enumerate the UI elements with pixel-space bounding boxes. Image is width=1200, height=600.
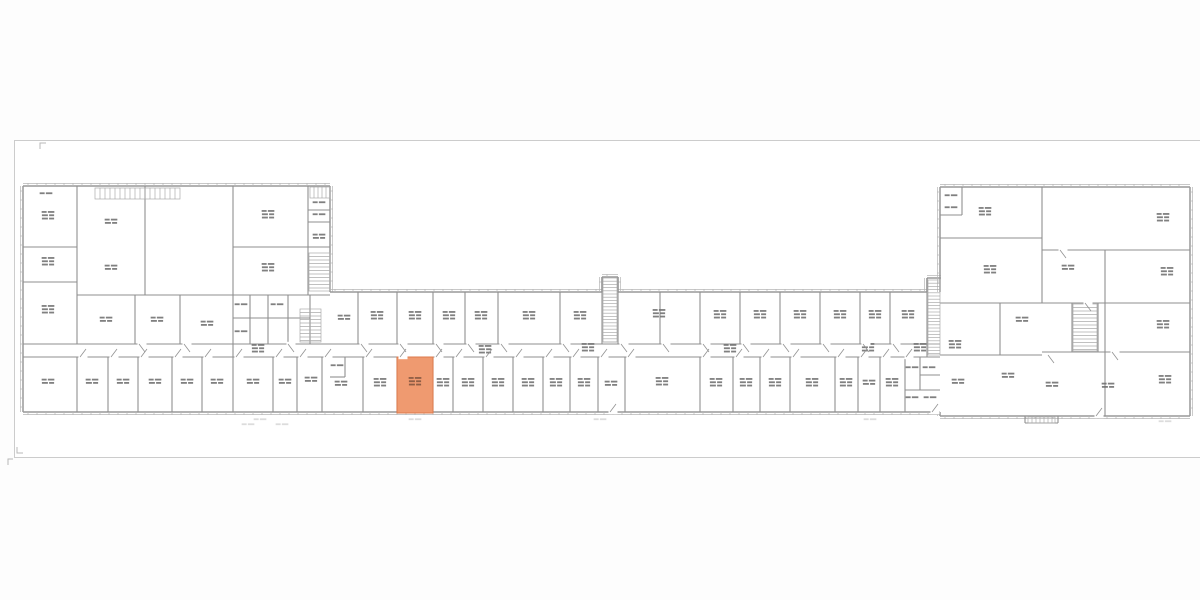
label-line bbox=[262, 270, 268, 272]
label-line bbox=[806, 385, 812, 387]
label-line bbox=[158, 320, 163, 322]
label-line bbox=[449, 311, 456, 313]
door-gap bbox=[365, 355, 374, 359]
door-gap bbox=[140, 355, 149, 359]
label-line bbox=[990, 265, 997, 267]
label-line bbox=[415, 377, 422, 379]
label-line bbox=[443, 314, 449, 316]
label-line bbox=[42, 312, 48, 314]
label-line bbox=[188, 382, 193, 384]
label-line bbox=[574, 314, 580, 316]
label-line bbox=[813, 381, 818, 383]
label-line bbox=[906, 366, 911, 368]
label-line bbox=[806, 378, 811, 380]
label-line bbox=[794, 310, 799, 312]
label-line bbox=[550, 385, 556, 387]
label-line bbox=[42, 382, 48, 384]
label-line bbox=[714, 313, 720, 315]
label-line bbox=[1164, 323, 1169, 325]
door-gap bbox=[174, 355, 183, 359]
label-line bbox=[923, 366, 928, 368]
room-label bbox=[313, 213, 326, 215]
label-line bbox=[247, 379, 252, 381]
label-line bbox=[840, 310, 847, 312]
label-line bbox=[331, 364, 336, 366]
label-line bbox=[468, 378, 475, 380]
label-line bbox=[469, 385, 474, 387]
label-line bbox=[581, 318, 586, 320]
label-line bbox=[720, 310, 727, 312]
label-line bbox=[450, 318, 455, 320]
highlighted-room[interactable] bbox=[397, 357, 433, 413]
label-line bbox=[1022, 317, 1029, 319]
label-line bbox=[594, 418, 599, 420]
label-line bbox=[482, 318, 487, 320]
label-line bbox=[840, 378, 845, 380]
label-line bbox=[252, 347, 258, 349]
label-line bbox=[605, 381, 610, 383]
label-line bbox=[479, 348, 485, 350]
label-line bbox=[869, 380, 876, 382]
room-label bbox=[235, 303, 248, 305]
label-line bbox=[656, 384, 662, 386]
label-line bbox=[269, 266, 274, 268]
label-line bbox=[1023, 320, 1028, 322]
label-line bbox=[656, 377, 661, 379]
label-line bbox=[1159, 420, 1164, 422]
label-line bbox=[378, 314, 383, 316]
label-line bbox=[662, 377, 669, 379]
label-line bbox=[380, 378, 387, 380]
label-line bbox=[985, 207, 992, 209]
door-gap bbox=[399, 355, 408, 359]
label-line bbox=[279, 382, 285, 384]
label-line bbox=[522, 378, 527, 380]
label-line bbox=[155, 379, 162, 381]
label-line bbox=[945, 194, 950, 196]
label-line bbox=[479, 352, 485, 354]
label-line bbox=[909, 313, 914, 315]
label-line bbox=[893, 381, 898, 383]
label-line bbox=[49, 260, 54, 262]
label-line bbox=[1164, 327, 1169, 329]
label-line bbox=[1016, 317, 1021, 319]
door-gap bbox=[572, 355, 581, 359]
label-line bbox=[1157, 213, 1162, 215]
label-line bbox=[721, 317, 726, 319]
label-line bbox=[156, 382, 161, 384]
label-line bbox=[482, 314, 487, 316]
label-line bbox=[1167, 267, 1174, 269]
label-line bbox=[313, 234, 318, 236]
label-line bbox=[740, 385, 746, 387]
door-gap bbox=[399, 342, 408, 346]
door-gap bbox=[600, 355, 609, 359]
room-label bbox=[242, 423, 255, 425]
label-line bbox=[1157, 216, 1163, 218]
label-line bbox=[151, 320, 157, 322]
label-line bbox=[262, 210, 267, 212]
label-line bbox=[902, 310, 907, 312]
label-line bbox=[342, 384, 347, 386]
label-line bbox=[498, 378, 505, 380]
label-line bbox=[740, 378, 745, 380]
label-line bbox=[475, 311, 480, 313]
room-label bbox=[594, 418, 607, 420]
label-line bbox=[499, 385, 504, 387]
label-line bbox=[612, 384, 617, 386]
label-line bbox=[285, 379, 292, 381]
label-line bbox=[117, 382, 123, 384]
label-line bbox=[574, 311, 579, 313]
room-label bbox=[331, 364, 344, 366]
label-line bbox=[335, 384, 341, 386]
label-line bbox=[86, 379, 91, 381]
label-line bbox=[444, 381, 449, 383]
label-line bbox=[313, 201, 318, 203]
label-line bbox=[578, 378, 583, 380]
door-gap bbox=[627, 355, 636, 359]
label-line bbox=[268, 263, 275, 265]
label-line bbox=[556, 378, 563, 380]
label-line bbox=[841, 317, 846, 319]
door-gap bbox=[1111, 350, 1120, 354]
label-line bbox=[157, 317, 164, 319]
label-line bbox=[1108, 383, 1115, 385]
label-line bbox=[721, 313, 726, 315]
label-line bbox=[374, 378, 379, 380]
label-line bbox=[42, 305, 47, 307]
label-line bbox=[344, 315, 351, 317]
label-line bbox=[529, 381, 534, 383]
label-line bbox=[1002, 373, 1007, 375]
label-line bbox=[319, 234, 326, 236]
label-line bbox=[724, 344, 729, 346]
room-label bbox=[923, 366, 936, 368]
floor-plan bbox=[0, 0, 1200, 600]
label-line bbox=[653, 316, 659, 318]
label-line bbox=[409, 418, 414, 420]
label-line bbox=[834, 317, 840, 319]
label-line bbox=[282, 423, 289, 425]
label-line bbox=[486, 348, 491, 350]
label-line bbox=[259, 351, 264, 353]
label-line bbox=[794, 317, 800, 319]
label-line bbox=[740, 381, 746, 383]
label-line bbox=[338, 315, 343, 317]
label-line bbox=[207, 321, 214, 323]
label-line bbox=[485, 345, 492, 347]
label-line bbox=[653, 312, 659, 314]
door-gap bbox=[905, 355, 914, 359]
label-line bbox=[761, 317, 766, 319]
door-gap bbox=[110, 355, 119, 359]
door-gap bbox=[455, 355, 464, 359]
label-line bbox=[211, 382, 217, 384]
label-line bbox=[201, 321, 206, 323]
label-line bbox=[443, 311, 448, 313]
label-line bbox=[1161, 270, 1167, 272]
label-line bbox=[338, 318, 344, 320]
label-line bbox=[775, 378, 782, 380]
label-line bbox=[149, 379, 154, 381]
label-line bbox=[1062, 268, 1068, 270]
door-gap bbox=[862, 342, 871, 346]
label-line bbox=[523, 311, 528, 313]
label-line bbox=[869, 317, 875, 319]
label-line bbox=[731, 347, 736, 349]
label-line bbox=[979, 207, 984, 209]
label-line bbox=[345, 318, 350, 320]
label-line bbox=[710, 381, 716, 383]
label-line bbox=[341, 381, 348, 383]
label-line bbox=[530, 314, 535, 316]
label-line bbox=[262, 266, 268, 268]
label-line bbox=[211, 379, 216, 381]
label-line bbox=[262, 263, 267, 265]
label-line bbox=[305, 380, 311, 382]
label-line bbox=[730, 344, 737, 346]
label-line bbox=[949, 347, 955, 349]
room-label bbox=[235, 330, 248, 332]
label-line bbox=[335, 381, 340, 383]
door-gap bbox=[892, 342, 901, 346]
label-line bbox=[117, 379, 122, 381]
label-line bbox=[663, 384, 668, 386]
label-line bbox=[959, 382, 964, 384]
label-line bbox=[320, 237, 325, 239]
label-line bbox=[124, 382, 129, 384]
label-line bbox=[1053, 385, 1058, 387]
label-line bbox=[49, 264, 54, 266]
label-line bbox=[578, 385, 584, 387]
label-line bbox=[724, 347, 730, 349]
label-line bbox=[409, 314, 415, 316]
label-line bbox=[769, 385, 775, 387]
label-line bbox=[444, 385, 449, 387]
label-line bbox=[914, 346, 920, 348]
label-line bbox=[754, 313, 760, 315]
label-line bbox=[252, 351, 258, 353]
label-line bbox=[580, 311, 587, 313]
label-line bbox=[462, 381, 468, 383]
label-line bbox=[550, 381, 556, 383]
label-line bbox=[371, 311, 376, 313]
label-line bbox=[48, 305, 55, 307]
label-line bbox=[991, 268, 996, 270]
label-line bbox=[151, 317, 156, 319]
label-line bbox=[611, 381, 618, 383]
door-gap bbox=[515, 355, 524, 359]
label-line bbox=[724, 351, 730, 353]
door-gap bbox=[435, 342, 444, 346]
label-line bbox=[269, 270, 274, 272]
label-line bbox=[886, 385, 892, 387]
label-line bbox=[286, 382, 291, 384]
label-line bbox=[812, 378, 819, 380]
label-line bbox=[840, 381, 846, 383]
label-line bbox=[710, 378, 715, 380]
label-line bbox=[912, 366, 919, 368]
label-line bbox=[523, 314, 529, 316]
label-line bbox=[42, 379, 47, 381]
floor-plan-viewer bbox=[0, 0, 1200, 600]
label-line bbox=[100, 317, 105, 319]
door-gap bbox=[882, 355, 891, 359]
label-line bbox=[893, 385, 898, 387]
label-line bbox=[1002, 376, 1008, 378]
label-line bbox=[48, 379, 55, 381]
label-line bbox=[241, 330, 248, 332]
label-line bbox=[93, 382, 98, 384]
room-label bbox=[409, 418, 422, 420]
label-line bbox=[1161, 267, 1166, 269]
label-line bbox=[149, 382, 155, 384]
label-line bbox=[585, 385, 590, 387]
room-label bbox=[254, 418, 267, 420]
label-line bbox=[653, 309, 658, 311]
label-line bbox=[875, 310, 882, 312]
label-line bbox=[1165, 375, 1172, 377]
label-line bbox=[886, 381, 892, 383]
label-line bbox=[415, 311, 422, 313]
label-line bbox=[956, 347, 961, 349]
label-line bbox=[834, 310, 839, 312]
label-line bbox=[247, 382, 253, 384]
label-line bbox=[311, 377, 318, 379]
label-line bbox=[769, 378, 774, 380]
label-line bbox=[912, 396, 919, 398]
label-line bbox=[381, 381, 386, 383]
label-line bbox=[717, 381, 722, 383]
label-line bbox=[443, 318, 449, 320]
label-line bbox=[105, 219, 110, 221]
label-line bbox=[584, 378, 591, 380]
label-line bbox=[1069, 268, 1074, 270]
label-line bbox=[523, 318, 529, 320]
label-line bbox=[492, 378, 497, 380]
label-line bbox=[550, 378, 555, 380]
label-line bbox=[714, 317, 720, 319]
label-line bbox=[1168, 274, 1173, 276]
label-line bbox=[578, 381, 584, 383]
label-line bbox=[530, 318, 535, 320]
label-line bbox=[902, 313, 908, 315]
label-line bbox=[1109, 386, 1114, 388]
label-line bbox=[1166, 378, 1171, 380]
label-line bbox=[269, 217, 274, 219]
door-gap bbox=[735, 355, 744, 359]
label-line bbox=[49, 218, 54, 220]
door-gap bbox=[762, 355, 771, 359]
label-line bbox=[588, 343, 595, 345]
label-line bbox=[492, 385, 498, 387]
label-line bbox=[717, 385, 722, 387]
label-line bbox=[589, 350, 594, 352]
label-line bbox=[949, 343, 955, 345]
label-line bbox=[416, 384, 421, 386]
label-line bbox=[1159, 375, 1164, 377]
label-line bbox=[846, 378, 853, 380]
label-line bbox=[381, 385, 386, 387]
label-line bbox=[955, 340, 962, 342]
label-line bbox=[864, 418, 869, 420]
label-line bbox=[337, 364, 344, 366]
label-line bbox=[906, 396, 911, 398]
label-line bbox=[869, 350, 874, 352]
label-line bbox=[42, 257, 47, 259]
label-line bbox=[1157, 220, 1163, 222]
label-line bbox=[437, 381, 443, 383]
door-gap bbox=[545, 355, 554, 359]
label-line bbox=[1157, 327, 1163, 329]
label-line bbox=[956, 343, 961, 345]
label-line bbox=[863, 383, 869, 385]
label-line bbox=[582, 346, 588, 348]
highlighted-room-group bbox=[397, 357, 433, 413]
label-line bbox=[1046, 385, 1052, 387]
label-line bbox=[409, 318, 415, 320]
label-line bbox=[105, 268, 111, 270]
label-line bbox=[499, 381, 504, 383]
label-line bbox=[1161, 274, 1167, 276]
label-line bbox=[86, 382, 92, 384]
door-gap bbox=[609, 410, 618, 414]
door-gap bbox=[360, 342, 369, 346]
label-line bbox=[48, 211, 55, 213]
label-line bbox=[313, 213, 318, 215]
label-line bbox=[1164, 220, 1169, 222]
label-line bbox=[201, 324, 207, 326]
label-line bbox=[42, 260, 48, 262]
label-line bbox=[876, 317, 881, 319]
label-line bbox=[574, 318, 580, 320]
label-line bbox=[528, 378, 535, 380]
label-line bbox=[747, 385, 752, 387]
label-line bbox=[581, 314, 586, 316]
label-line bbox=[991, 272, 996, 274]
label-line bbox=[1157, 320, 1162, 322]
label-line bbox=[49, 312, 54, 314]
label-line bbox=[870, 383, 875, 385]
label-line bbox=[914, 350, 920, 352]
label-line bbox=[313, 237, 319, 239]
label-line bbox=[869, 346, 874, 348]
label-line bbox=[374, 385, 380, 387]
label-line bbox=[409, 384, 415, 386]
label-line bbox=[112, 268, 117, 270]
label-line bbox=[979, 214, 985, 216]
door-gap bbox=[702, 355, 711, 359]
door-gap bbox=[235, 355, 244, 359]
label-line bbox=[276, 423, 281, 425]
label-line bbox=[262, 213, 268, 215]
label-line bbox=[277, 303, 284, 305]
label-line bbox=[522, 381, 528, 383]
label-line bbox=[259, 347, 264, 349]
room-label bbox=[945, 206, 958, 208]
label-line bbox=[716, 378, 723, 380]
room-label bbox=[906, 396, 919, 398]
label-line bbox=[48, 257, 55, 259]
label-line bbox=[747, 381, 752, 383]
label-line bbox=[806, 381, 812, 383]
label-line bbox=[105, 222, 111, 224]
door-gap bbox=[931, 410, 940, 414]
label-line bbox=[945, 206, 950, 208]
room-label bbox=[313, 201, 326, 203]
label-line bbox=[1157, 323, 1163, 325]
